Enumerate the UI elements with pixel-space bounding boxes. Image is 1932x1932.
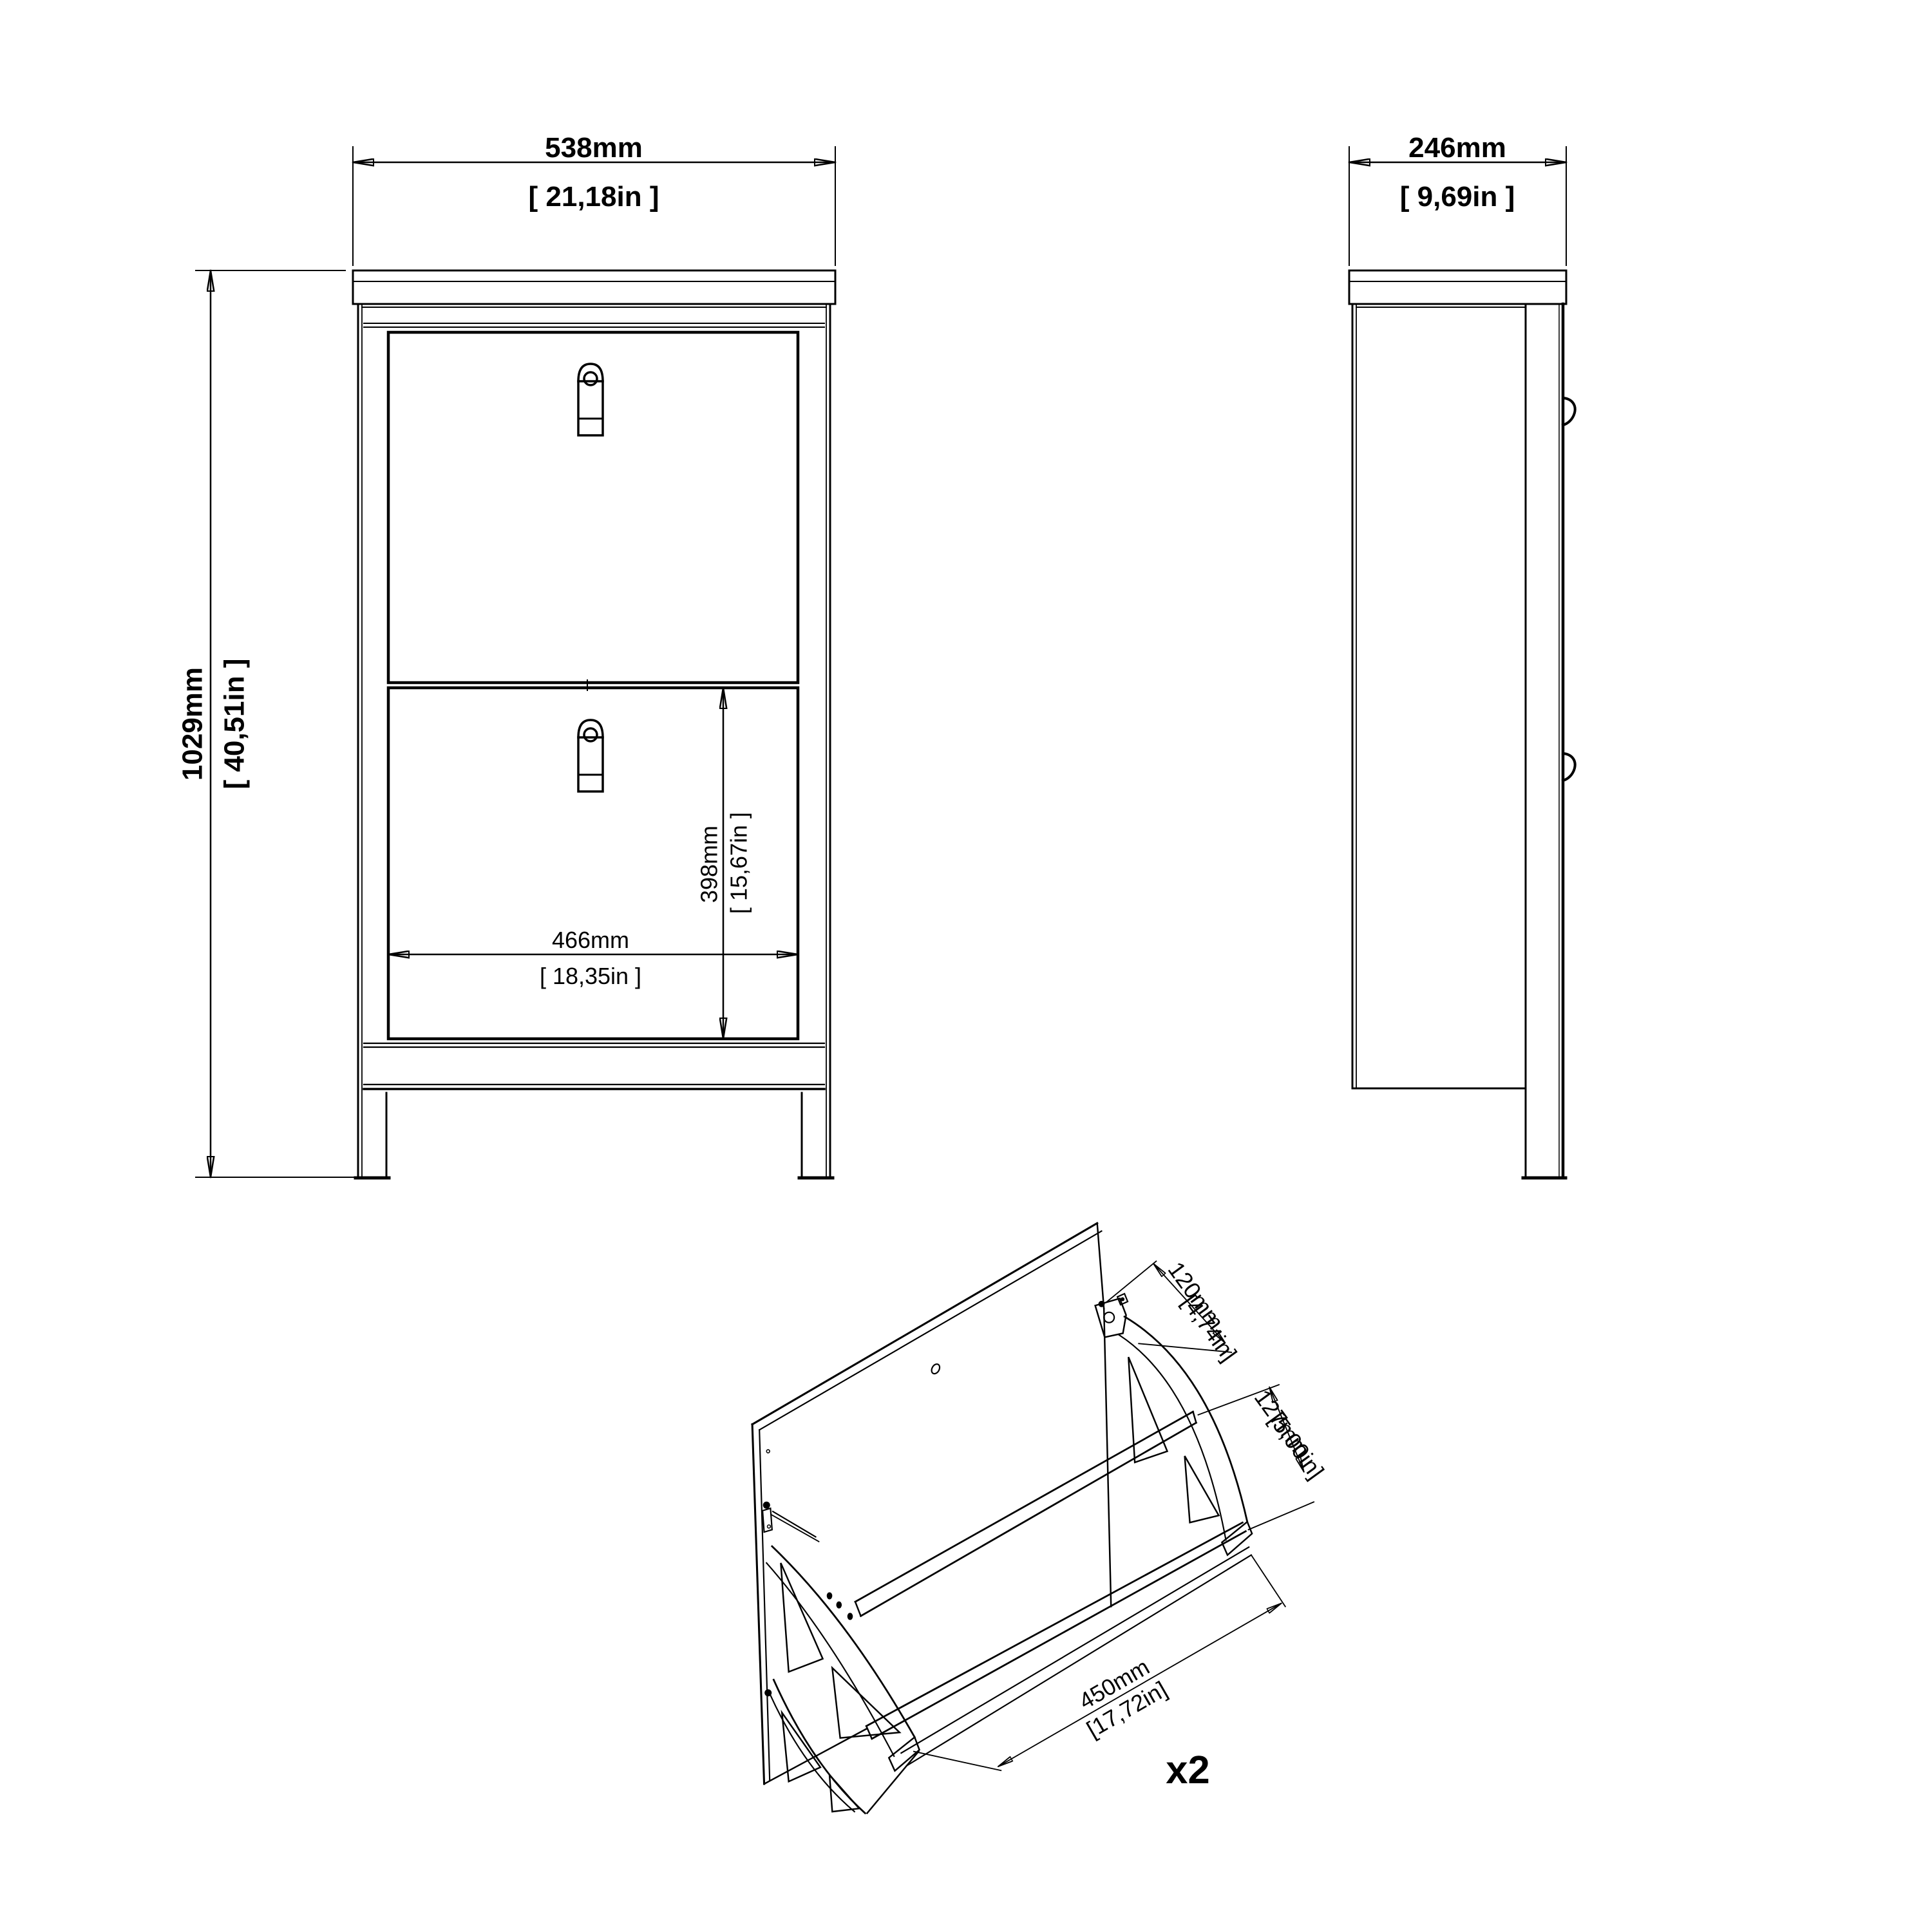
dimension-line <box>998 1604 1282 1766</box>
bracket-outer-arc <box>772 1546 914 1737</box>
front-inner-width-dimension: 466mm [ 18,35in ] <box>388 927 798 989</box>
side-view: 246mm [ 9,69in ] <box>1349 132 1575 1178</box>
handle-body <box>578 381 603 435</box>
front-height-dim-in-label: [ 40,51in ] <box>219 659 251 790</box>
rail-left-cap <box>866 1726 872 1739</box>
bracket-hole <box>848 1613 853 1620</box>
flap-hinge-dimension: 120mm [4,74in] <box>1107 1257 1242 1366</box>
upper-door-handle-icon <box>578 364 603 435</box>
rail-bottom-edge <box>872 1531 1245 1739</box>
upper-handle-profile-icon <box>1563 398 1575 425</box>
front-door-height-dimension: 398mm [ 15,67in ] <box>696 688 752 1039</box>
top-panel <box>353 270 835 304</box>
handle-ring <box>584 372 597 385</box>
bracket-hole <box>836 1602 842 1609</box>
lower-handle-profile-icon <box>1563 753 1575 781</box>
flap-top-hinge <box>1095 1294 1128 1338</box>
front-view: 538mm [ 21,18in ] 1029mm [ 40,51in ] <box>177 132 836 1178</box>
rail-top-edge <box>866 1522 1242 1726</box>
bracket-tip <box>1222 1522 1252 1555</box>
panel-left-edge-inner <box>759 1430 770 1780</box>
hinge-arm-line <box>772 1515 819 1542</box>
inner-width-dim-in-label: [ 18,35in ] <box>540 963 641 989</box>
extension-line <box>914 1752 1001 1771</box>
side-depth-dimension: 246mm [ 9,69in ] <box>1349 132 1566 265</box>
hinge-arm <box>773 1511 815 1537</box>
front-width-dim-in-label: [ 21,18in ] <box>529 181 659 213</box>
extension-line <box>1107 1261 1156 1302</box>
inner-width-dim-mm-label: 466mm <box>552 927 629 953</box>
flap-left-hinge <box>762 1502 819 1542</box>
flap-front-rail <box>866 1522 1251 1766</box>
side-handle-profiles <box>1563 398 1575 781</box>
flap-depth-dim-in-label: [5,00in] <box>1264 1408 1329 1484</box>
lower-fan-outer-arc <box>773 1680 865 1813</box>
bin-bottom-edge <box>907 1555 1251 1766</box>
bracket-hole <box>827 1592 833 1599</box>
technical-drawing-canvas: 538mm [ 21,18in ] 1029mm [ 40,51in ] <box>0 0 1932 1932</box>
flap-depth-dimension: 127mm [5,00in] <box>1198 1385 1329 1529</box>
panel-top-edge-inner <box>759 1231 1101 1430</box>
door-height-dim-in-label: [ 15,67in ] <box>726 812 752 914</box>
panel-top-edge <box>752 1223 1097 1424</box>
bracket-tip <box>889 1737 919 1770</box>
flap-unit-view: 120mm [4,74in] 127mm [5,00in] 450mm [17,… <box>752 1223 1329 1813</box>
shelf-top-edge <box>855 1412 1193 1602</box>
hinge-bracket <box>762 1508 772 1532</box>
quantity-label: x2 <box>1166 1748 1209 1792</box>
hinge-pivot <box>763 1502 770 1509</box>
front-cabinet-outline <box>353 270 835 1178</box>
flap-left-bracket <box>764 1546 919 1813</box>
extension-line <box>1249 1502 1314 1529</box>
handle-ring <box>584 728 597 741</box>
lower-door-handle-icon <box>578 720 603 791</box>
side-depth-dim-mm-label: 246mm <box>1408 132 1506 164</box>
panel-left-edge <box>752 1425 764 1784</box>
hinge-pivot <box>1099 1301 1105 1307</box>
flap-width-dimension: 450mm [17,72in] <box>914 1555 1285 1771</box>
panel-right-edge <box>1097 1223 1104 1309</box>
door-height-dim-mm-label: 398mm <box>696 826 723 903</box>
bracket-cutout <box>1128 1357 1167 1463</box>
lower-fan-inner-arc <box>770 1694 855 1812</box>
edge-hole <box>767 1525 770 1528</box>
front-height-dim-mm-label: 1029mm <box>177 667 209 781</box>
bracket-inner-arc <box>766 1563 894 1756</box>
shoe-cabinet-technical-drawing: 538mm [ 21,18in ] 1029mm [ 40,51in ] <box>0 0 1932 1932</box>
front-height-dimension: 1029mm [ 40,51in ] <box>177 270 355 1177</box>
shelf-left-cap <box>855 1602 861 1616</box>
lower-front-edge <box>867 1752 918 1814</box>
bracket-cutout <box>782 1712 820 1781</box>
front-width-dimension: 538mm [ 21,18in ] <box>353 132 835 265</box>
handle-body <box>578 737 603 791</box>
flap-shelf <box>855 1412 1196 1616</box>
bracket-cutout <box>832 1668 900 1738</box>
edge-hole <box>766 1450 770 1453</box>
hinge-hole <box>1104 1312 1114 1323</box>
side-cabinet-outline <box>1349 270 1566 1178</box>
extension-line <box>1251 1555 1285 1607</box>
side-depth-dim-in-label: [ 9,69in ] <box>1400 181 1515 213</box>
bracket-cutout <box>781 1563 822 1672</box>
shelf-right-cap <box>1193 1412 1197 1423</box>
front-width-dim-mm-label: 538mm <box>545 132 643 164</box>
screw-hole <box>930 1363 942 1375</box>
top-panel-side <box>1349 270 1566 304</box>
hinge-pin <box>1121 1297 1124 1301</box>
